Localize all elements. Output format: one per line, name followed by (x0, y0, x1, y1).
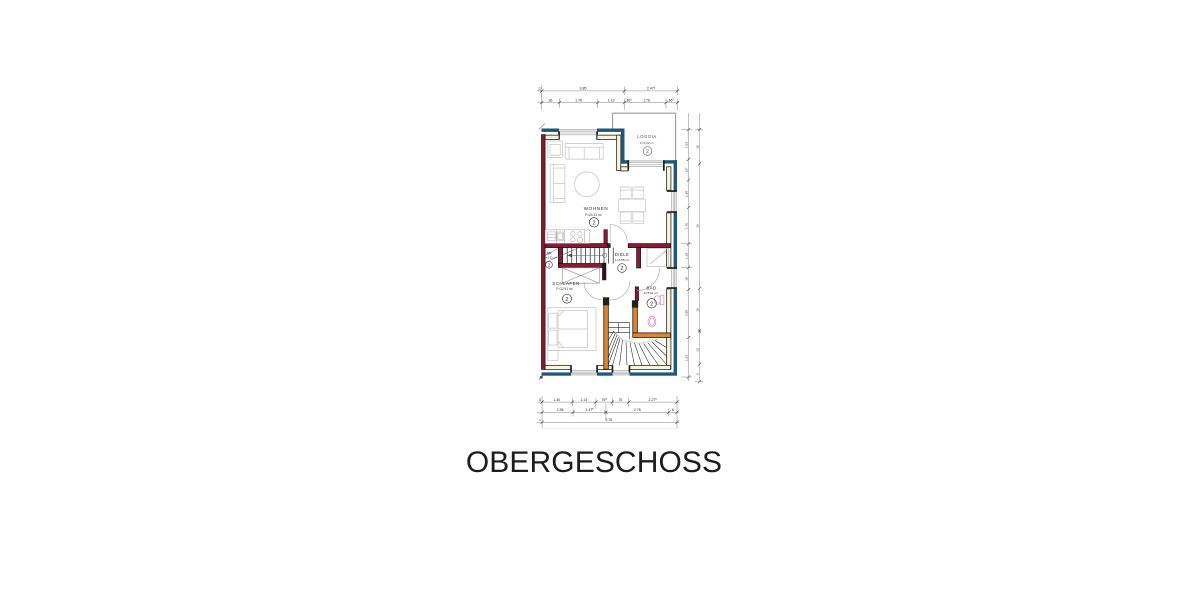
svg-text:2.475: 2.475 (585, 408, 594, 412)
svg-text:76: 76 (618, 398, 622, 402)
svg-text:36: 36 (549, 98, 553, 102)
svg-text:18: 18 (684, 277, 688, 281)
svg-text:13: 13 (538, 398, 542, 402)
svg-text:2: 2 (650, 301, 653, 307)
svg-text:1.40: 1.40 (553, 398, 560, 402)
svg-text:2.38: 2.38 (684, 310, 688, 316)
svg-text:2: 2 (538, 419, 542, 421)
svg-text:165: 165 (684, 167, 688, 172)
svg-text:DIELE: DIELE (615, 252, 630, 257)
svg-text:2: 2 (646, 149, 649, 155)
svg-text:F=6.02 m²: F=6.02 m² (640, 141, 654, 145)
svg-text:16: 16 (695, 145, 699, 149)
svg-text:3.85: 3.85 (580, 87, 587, 91)
svg-text:6: 6 (672, 408, 674, 412)
svg-text:SCHLAFEN: SCHLAFEN (552, 281, 579, 286)
svg-text:WOHNEN: WOHNEN (584, 206, 609, 211)
svg-text:6: 6 (695, 373, 699, 375)
svg-text:2.38: 2.38 (557, 408, 564, 412)
svg-text:13: 13 (538, 87, 542, 91)
svg-text:1.76: 1.76 (643, 98, 650, 102)
svg-text:1.76: 1.76 (684, 223, 688, 229)
svg-text:2.475: 2.475 (647, 87, 656, 91)
svg-text:F=24.31 m²: F=24.31 m² (585, 213, 603, 217)
svg-text:1.18: 1.18 (684, 253, 688, 259)
svg-text:365: 365 (668, 98, 674, 102)
svg-text:F=5.61 m²: F=5.61 m² (644, 291, 658, 295)
svg-text:1.23: 1.23 (684, 355, 688, 361)
svg-text:BAD: BAD (646, 286, 656, 291)
svg-text:OBERGESCHOSS: OBERGESCHOSS (466, 446, 722, 479)
svg-text:LOGGIA: LOGGIA (637, 134, 656, 139)
svg-text:16: 16 (695, 224, 699, 228)
svg-text:F=3.55 m²: F=3.55 m² (615, 258, 629, 262)
svg-text:F=12.51 m²: F=12.51 m² (556, 287, 572, 291)
svg-text:16: 16 (695, 308, 699, 312)
svg-text:2: 2 (566, 297, 569, 303)
svg-text:5.76: 5.76 (605, 418, 612, 422)
svg-text:2: 2 (593, 220, 596, 226)
svg-text:1.13: 1.13 (608, 98, 615, 102)
svg-text:2: 2 (548, 263, 551, 268)
svg-text:F=1.51 m²: F=1.51 m² (544, 256, 557, 260)
svg-text:1.13: 1.13 (580, 398, 587, 402)
svg-text:365: 365 (626, 98, 632, 102)
svg-text:13: 13 (695, 348, 699, 352)
svg-text:1.38: 1.38 (684, 191, 688, 197)
svg-text:2.76: 2.76 (634, 408, 641, 412)
svg-text:765: 765 (601, 398, 607, 402)
svg-text:2: 2 (621, 266, 624, 272)
svg-text:1.76: 1.76 (575, 98, 582, 102)
svg-text:2.275: 2.275 (649, 398, 658, 402)
svg-text:1.63: 1.63 (684, 142, 688, 148)
